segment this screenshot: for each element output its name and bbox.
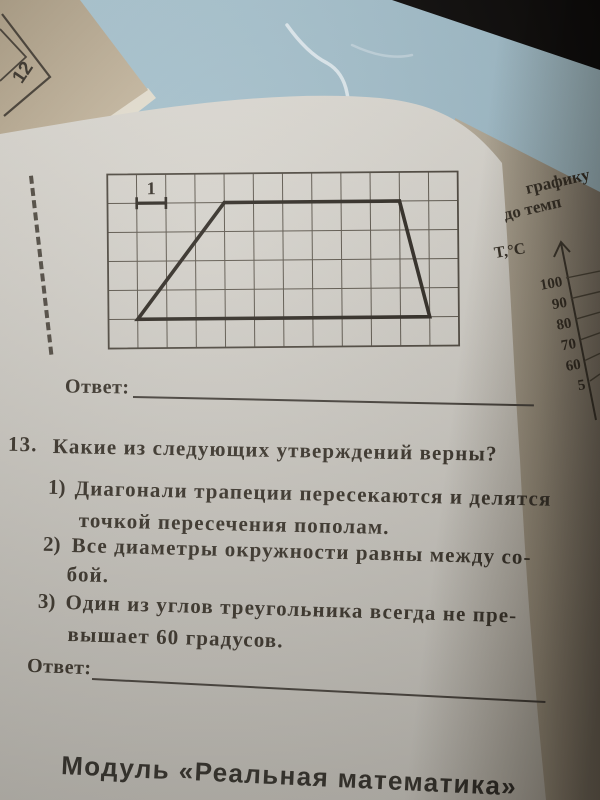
right-page-text-fragment-2: до темп [502,192,564,224]
item-2-marker: 2) [43,532,61,557]
axis-tick-label: 100 [539,274,564,294]
figure-grid-lines [107,171,459,348]
item-3-marker: 3) [38,589,56,615]
axis-tick-label: 5 [577,377,587,394]
task-number: 13. [8,432,38,458]
axis-gridline [590,374,600,381]
axis-gridline [566,271,600,278]
grid-figure-trapezoid: 1 [97,163,471,358]
axis-gridline [580,333,600,340]
unit-label: 1 [147,178,156,198]
axis-tick-label: 90 [551,295,569,313]
axis-gridline [571,292,600,299]
axis-gridline [585,353,600,360]
axis-gridline [576,312,600,319]
axis-tick-label: 60 [565,357,583,375]
item-1-marker: 1) [48,475,66,500]
temperature-graph-fragment: графикудо темпT,°C100908070605 [488,168,600,448]
answer-label-top: Ответ: [65,376,130,400]
answer-label-bottom: Ответ: [27,655,92,680]
unit-segment-marker [137,197,166,209]
item-2-line-2: бой. [66,562,109,588]
axis-tick-label: 80 [555,315,573,333]
axis-title: T,°C [493,240,527,262]
axis-tick-label: 70 [560,336,578,354]
photo-of-textbook-page: 12 1 Ответ: 13. Какие из следующих утвер… [0,0,600,800]
